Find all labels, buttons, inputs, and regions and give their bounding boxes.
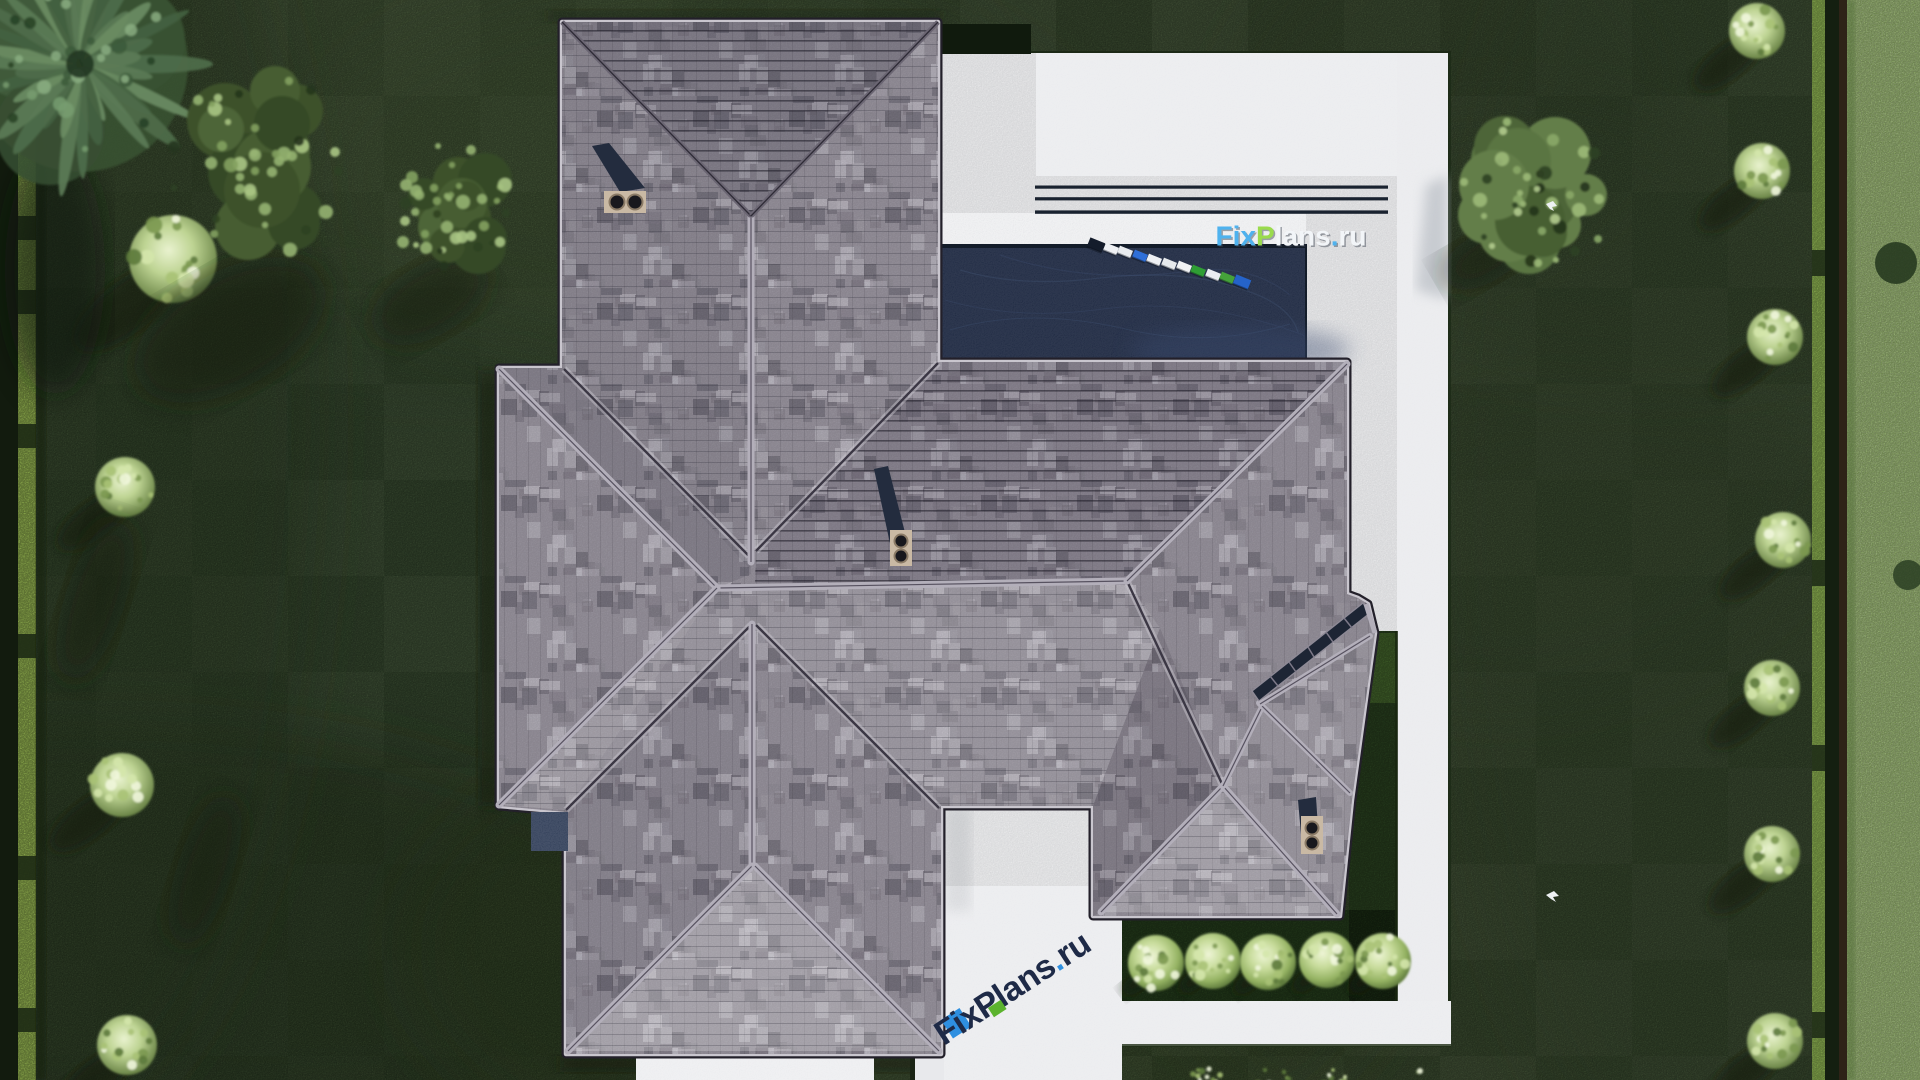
svg-text:FixPlans.ru: FixPlans.ru: [1216, 221, 1367, 252]
